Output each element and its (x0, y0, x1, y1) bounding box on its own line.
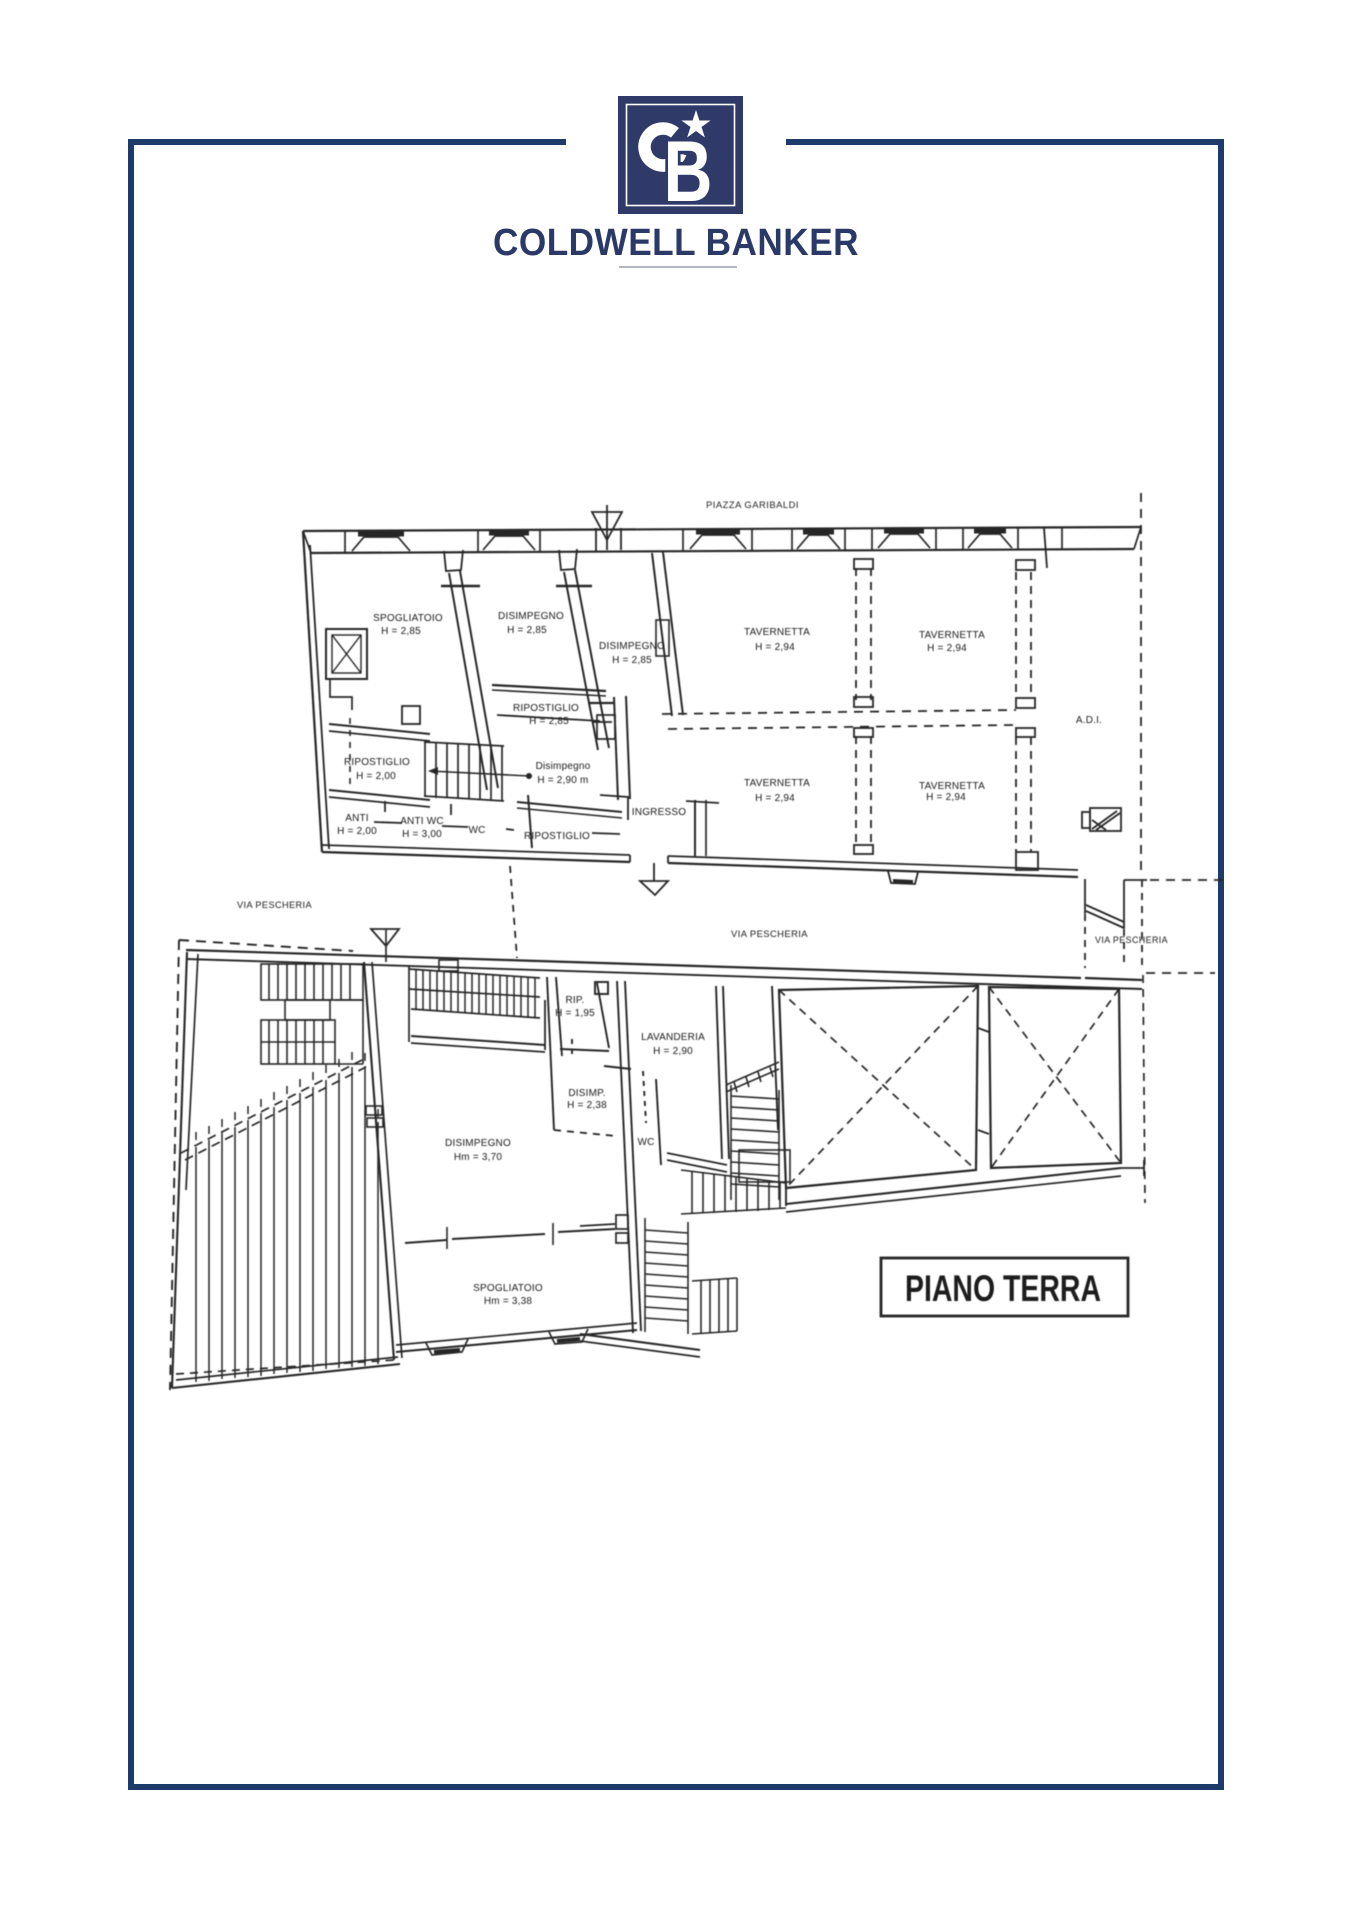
svg-text:VIA PESCHERIA: VIA PESCHERIA (731, 929, 808, 940)
svg-text:H = 2,85: H = 2,85 (507, 625, 547, 636)
svg-text:ANTI WC: ANTI WC (400, 816, 444, 827)
svg-text:TAVERNETTA: TAVERNETTA (919, 630, 985, 641)
svg-text:Hm = 3,70: Hm = 3,70 (454, 1152, 502, 1163)
svg-text:WC: WC (468, 825, 485, 836)
svg-text:H = 2,90: H = 2,90 (653, 1046, 693, 1057)
svg-text:H = 2,94: H = 2,94 (755, 642, 795, 653)
svg-text:H = 2,85: H = 2,85 (612, 655, 652, 666)
svg-text:H = 1,95: H = 1,95 (555, 1008, 595, 1019)
svg-text:RIPOSTIGLIO: RIPOSTIGLIO (344, 757, 410, 768)
svg-text:VIA PESCHERIA: VIA PESCHERIA (237, 900, 312, 911)
svg-text:TAVERNETTA: TAVERNETTA (744, 627, 810, 638)
svg-text:SPOGLIATOIO: SPOGLIATOIO (473, 1283, 543, 1294)
svg-text:RIPOSTIGLIO: RIPOSTIGLIO (513, 703, 579, 714)
svg-text:H = 2,94: H = 2,94 (927, 643, 967, 654)
svg-text:COLDWELL BANKER: COLDWELL BANKER (493, 222, 859, 264)
svg-text:PIANO TERRA: PIANO TERRA (905, 1268, 1101, 1309)
svg-text:H = 2,85: H = 2,85 (529, 716, 569, 727)
svg-text:DISIMPEGNO: DISIMPEGNO (498, 611, 564, 622)
svg-text:RIP.: RIP. (566, 995, 585, 1006)
svg-text:LAVANDERIA: LAVANDERIA (641, 1032, 705, 1043)
svg-text:DISIMPEGNO: DISIMPEGNO (445, 1138, 511, 1149)
svg-text:H = 2,00: H = 2,00 (356, 771, 396, 782)
svg-text:H = 2,00: H = 2,00 (337, 826, 377, 837)
svg-text:H = 2,94: H = 2,94 (926, 792, 966, 803)
svg-text:PIAZZA GARIBALDI: PIAZZA GARIBALDI (706, 500, 799, 511)
svg-text:Disimpegno: Disimpegno (536, 761, 591, 772)
svg-text:H = 2,90 m: H = 2,90 m (537, 775, 588, 786)
svg-text:H = 2,85: H = 2,85 (381, 626, 421, 637)
svg-text:INGRESSO: INGRESSO (632, 807, 686, 818)
svg-text:DISIMP.: DISIMP. (568, 1088, 605, 1099)
svg-text:A.D.I.: A.D.I. (1076, 715, 1102, 726)
svg-text:H = 2,38: H = 2,38 (567, 1100, 607, 1111)
svg-text:SPOGLIATOIO: SPOGLIATOIO (373, 613, 443, 624)
svg-text:H = 3,00: H = 3,00 (402, 829, 442, 840)
svg-text:TAVERNETTA: TAVERNETTA (919, 781, 985, 792)
svg-text:TAVERNETTA: TAVERNETTA (744, 778, 810, 789)
svg-text:WC: WC (637, 1137, 654, 1148)
svg-text:RIPOSTIGLIO: RIPOSTIGLIO (524, 831, 590, 842)
svg-text:Hm = 3,38: Hm = 3,38 (484, 1296, 532, 1307)
svg-text:ANTI: ANTI (345, 813, 369, 824)
svg-text:H = 2,94: H = 2,94 (755, 793, 795, 804)
svg-text:DISIMPEGNO: DISIMPEGNO (599, 641, 665, 652)
svg-text:VIA PESCHERIA: VIA PESCHERIA (1095, 935, 1168, 946)
